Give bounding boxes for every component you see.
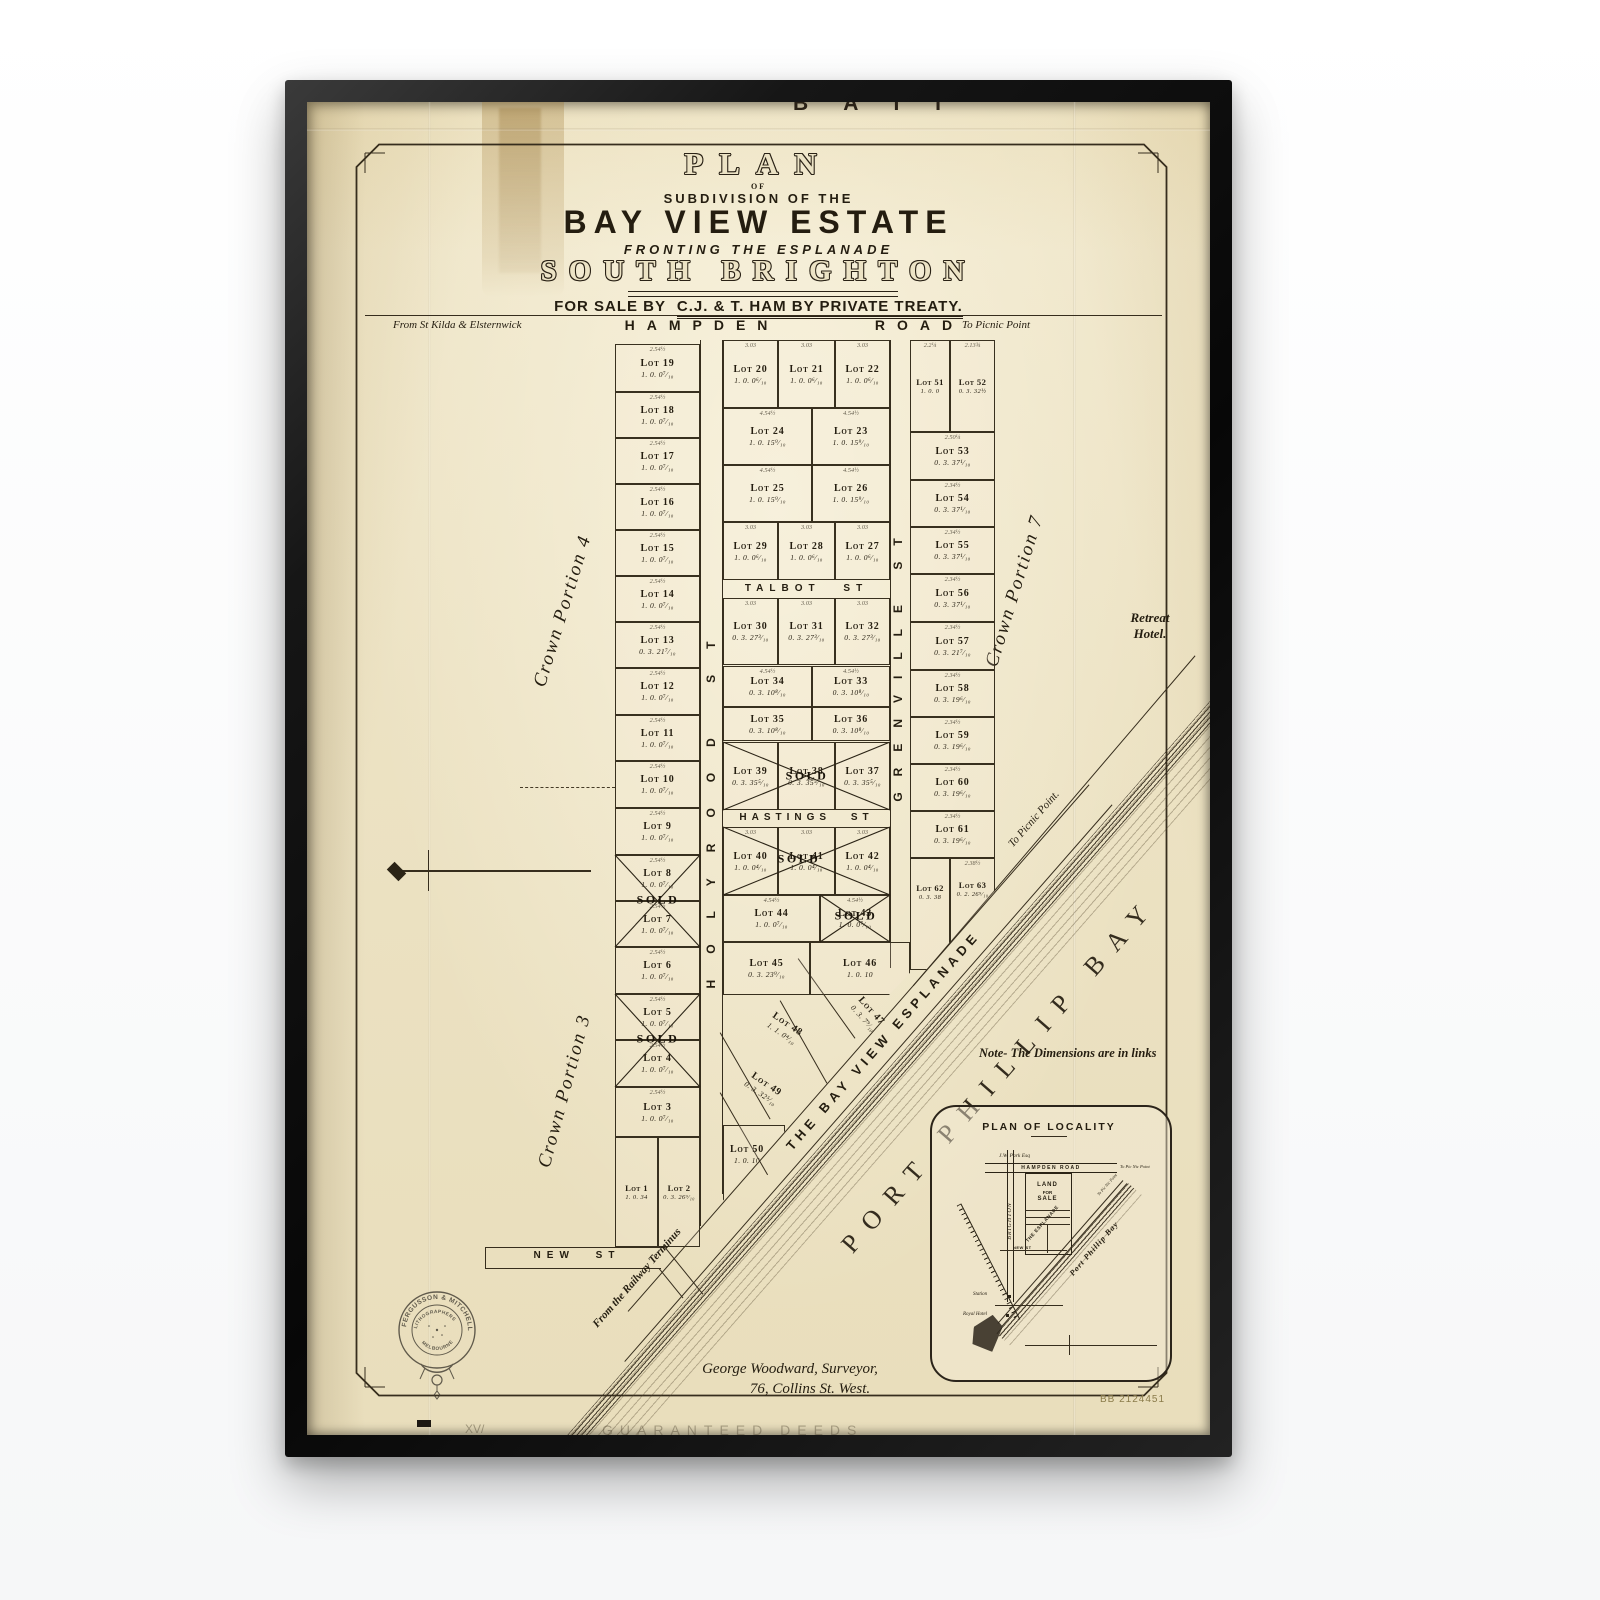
inset-scale-tick bbox=[1069, 1335, 1070, 1355]
inset-hotel-dot bbox=[1006, 1314, 1009, 1317]
sold-label: SOLD bbox=[637, 893, 680, 908]
inset-land-vline bbox=[1047, 1224, 1048, 1253]
inset-hampden-road: HAMPDEN ROAD bbox=[985, 1163, 1117, 1173]
sold-label: SOLD bbox=[786, 769, 829, 784]
sold-label: SOLD bbox=[637, 1032, 680, 1047]
inset-hampden-label: HAMPDEN ROAD bbox=[985, 1164, 1117, 1172]
inset-title: PLAN OF LOCALITY bbox=[930, 1121, 1168, 1133]
inset-title-underline bbox=[1031, 1136, 1067, 1137]
page: B A I I PLAN OF SUBDIVISION OF THE BAY V… bbox=[0, 0, 1600, 1600]
inset-land-line1 bbox=[1025, 1210, 1070, 1211]
dimensions-note: Note- The Dimensions are in links bbox=[979, 1046, 1156, 1061]
inset-land1: LAND bbox=[1025, 1182, 1070, 1190]
map-paper: B A I I PLAN OF SUBDIVISION OF THE BAY V… bbox=[307, 102, 1210, 1435]
sold-label: SOLD bbox=[778, 852, 821, 867]
inset-hotel-label: Royal Hotel bbox=[963, 1312, 987, 1317]
inset-new-st-line bbox=[1000, 1250, 1067, 1251]
inset-scale-line bbox=[1025, 1345, 1157, 1346]
inset-owner-label: J.W. Park Esq bbox=[999, 1153, 1030, 1159]
inset-lower-cross-line bbox=[995, 1305, 1063, 1306]
inset-station-label: Station bbox=[973, 1292, 987, 1297]
picture-frame: B A I I PLAN OF SUBDIVISION OF THE BAY V… bbox=[285, 80, 1232, 1457]
inset-station-dot bbox=[1008, 1295, 1011, 1298]
sold-label: SOLD bbox=[835, 909, 878, 924]
